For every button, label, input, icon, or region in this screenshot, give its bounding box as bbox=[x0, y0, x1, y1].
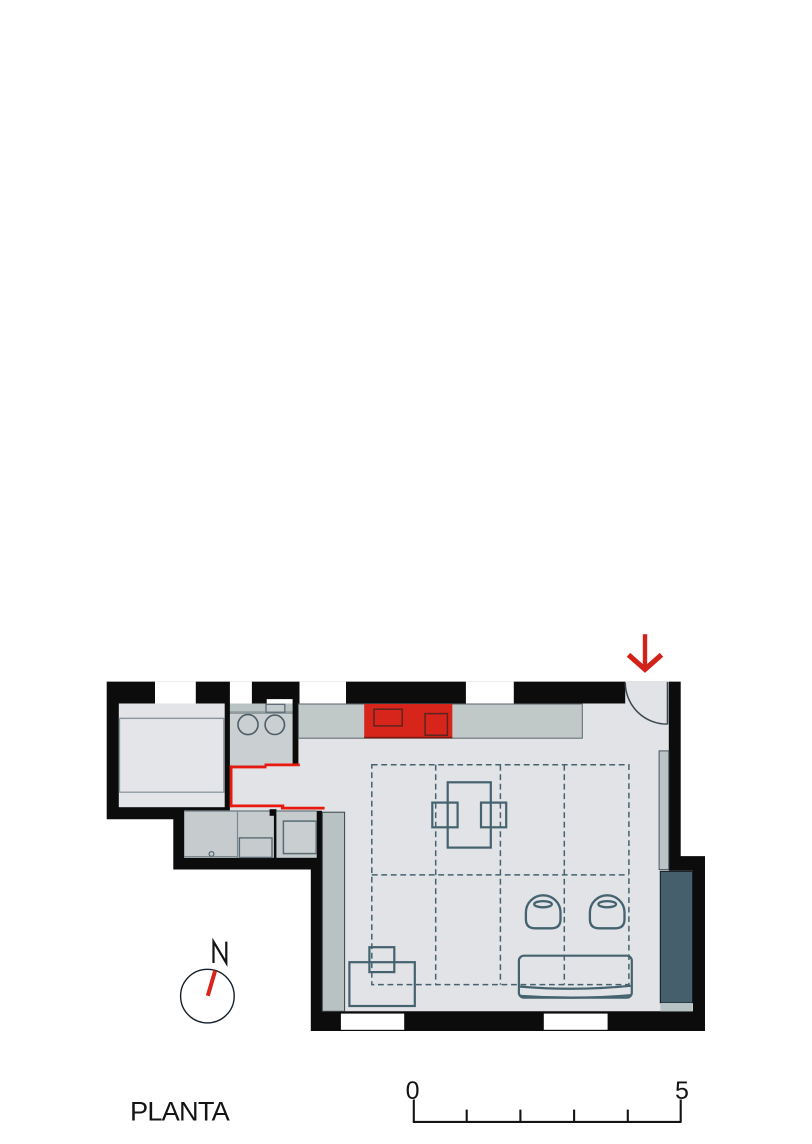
svg-text:PLANTA: PLANTA bbox=[130, 1096, 231, 1127]
svg-text:5: 5 bbox=[675, 1077, 689, 1105]
svg-text:0: 0 bbox=[406, 1077, 420, 1105]
